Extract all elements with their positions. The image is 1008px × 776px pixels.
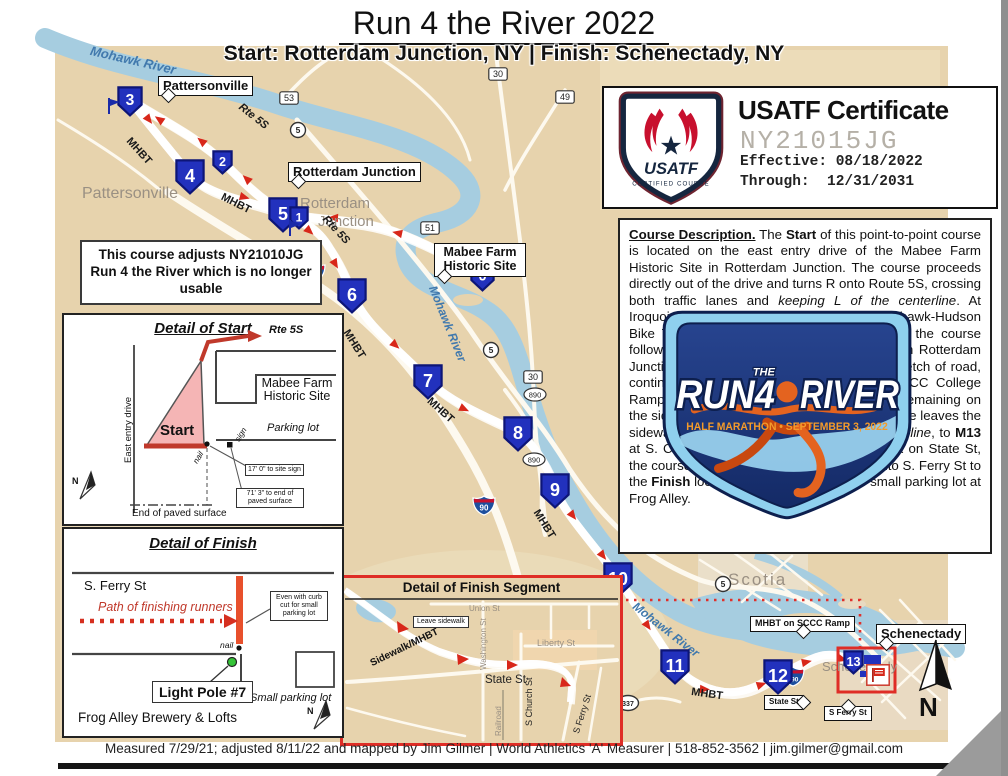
svg-text:890: 890 xyxy=(528,455,541,464)
svg-text:3: 3 xyxy=(126,92,135,109)
map-callout: MHBT on SCCC Ramp xyxy=(750,616,855,632)
usatf-shield-logo: USATF CERTIFIED COURSE xyxy=(612,90,730,206)
certificate-effective-row: Effective: 08/18/2022 xyxy=(740,154,923,170)
segment-washington-st: Washington St xyxy=(480,618,488,670)
detail-start-drive: East entry drive xyxy=(124,397,134,463)
logo-head-dot xyxy=(776,381,797,402)
svg-text:53: 53 xyxy=(284,93,294,103)
segment-state-st: State St xyxy=(485,674,526,686)
through-label: Through: xyxy=(740,174,810,190)
svg-text:5: 5 xyxy=(489,345,494,355)
poi-square-blue xyxy=(860,671,866,677)
svg-text:30: 30 xyxy=(528,372,538,382)
logo-the: THE xyxy=(753,367,776,379)
poi-building-blue xyxy=(864,655,881,664)
route-shield-30: 30 xyxy=(523,370,543,384)
map-callout: State St xyxy=(764,695,804,710)
certificate-title: USATF Certificate xyxy=(738,95,949,126)
segment-railroad: Railroad xyxy=(495,706,503,736)
route-shield-30: 30 xyxy=(488,67,508,81)
detail-finish-brewery: Frog Alley Brewery & Lofts xyxy=(78,711,237,725)
segment-union-st: Union St xyxy=(469,605,500,613)
route-shield-53: 53 xyxy=(279,91,299,105)
svg-text:890: 890 xyxy=(529,390,542,399)
svg-text:5: 5 xyxy=(296,125,301,135)
effective-label: Effective: xyxy=(740,154,827,170)
mile-marker-12: 12 xyxy=(763,659,793,695)
mile-marker-7: 7 xyxy=(413,364,443,400)
page-edge-right xyxy=(1001,0,1008,776)
map-callout: Rotterdam Junction xyxy=(288,162,421,182)
mile-marker-4: 4 xyxy=(175,159,205,195)
route-shield-49: 49 xyxy=(555,90,575,104)
svg-text:7: 7 xyxy=(423,371,433,391)
mile-marker-9: 9 xyxy=(540,473,570,509)
course-map-page: { "page": { "title": "Run 4 the River 20… xyxy=(0,0,1008,776)
svg-text:5: 5 xyxy=(721,579,726,589)
mile-marker-6: 6 xyxy=(337,278,367,314)
detail-finish-drawing xyxy=(64,529,342,736)
blue-flag-icon xyxy=(287,219,303,237)
mile-marker-8: 8 xyxy=(503,416,533,452)
detail-of-finish-box: Detail of Finish S. Ferry St Path of fin… xyxy=(62,527,344,738)
detail-start-paved: End of paved surface xyxy=(132,509,227,520)
detail-of-finish-segment-box: Detail of Finish Segment Union St Washin… xyxy=(340,575,623,746)
blue-flag-icon xyxy=(106,97,122,115)
map-label: Pattersonville xyxy=(82,186,178,202)
detail-start-rte5s: Rte 5S xyxy=(269,325,303,337)
usatf-badge-name: USATF xyxy=(644,159,699,178)
route-shield-5: 5 xyxy=(714,575,732,593)
usatf-certificate-box: USATF CERTIFIED COURSE USATF Certificate… xyxy=(602,86,998,209)
map-callout: Pattersonville xyxy=(158,76,253,96)
detail-start-callout-sign: 17' 0" to site sign xyxy=(245,464,304,476)
logo-word2: RIVER xyxy=(800,372,899,417)
detail-start-start: Start xyxy=(160,423,194,439)
detail-finish-street: S. Ferry St xyxy=(84,579,146,593)
segment-church-st: S Church St xyxy=(525,677,534,726)
usatf-badge-sub: CERTIFIED COURSE xyxy=(632,180,709,187)
detail-of-start-box: Detail of Start Rte 5S East entry drive … xyxy=(62,313,344,526)
effective-value: 08/18/2022 xyxy=(836,154,923,170)
svg-text:11: 11 xyxy=(665,656,684,676)
course-adjust-note: This course adjusts NY21010JG Run 4 the … xyxy=(80,240,322,305)
svg-text:6: 6 xyxy=(347,285,357,305)
segment-title: Detail of Finish Segment xyxy=(343,581,620,595)
map-label: Scotia xyxy=(728,571,787,588)
north-arrow-label: N xyxy=(919,692,938,723)
page-title: Run 4 the River 2022 xyxy=(0,5,1008,45)
map-callout: S Ferry St xyxy=(824,706,872,721)
detail-finish-callout: Even with curb cut for small parking lot xyxy=(270,591,328,621)
measurer-credit: Measured 7/29/21; adjusted 8/11/22 and m… xyxy=(0,741,1008,756)
map-label: Rotterdam xyxy=(300,196,370,211)
detail-finish-north-label: N xyxy=(307,707,314,716)
certificate-number: NY21015JG xyxy=(740,126,898,156)
svg-text:90: 90 xyxy=(480,504,489,513)
detail-finish-parking: Small parking lot xyxy=(250,693,331,705)
red-flag-icon xyxy=(866,664,890,686)
svg-text:12: 12 xyxy=(768,666,788,686)
svg-text:4: 4 xyxy=(185,166,195,186)
route-shield-90: 90 xyxy=(472,495,496,516)
detail-start-north-label: N xyxy=(72,477,79,486)
svg-text:13: 13 xyxy=(846,655,860,669)
detail-finish-nail: nail xyxy=(220,641,233,650)
detail-start-building: Mabee Farm Historic Site xyxy=(261,377,333,403)
segment-liberty-st: Liberty St xyxy=(537,639,575,648)
route-shield-890: 890 xyxy=(522,452,546,467)
svg-text:337: 337 xyxy=(622,701,634,708)
detail-start-callout-paved: 71' 3" to end of paved surface xyxy=(236,488,304,508)
svg-text:30: 30 xyxy=(493,69,503,79)
svg-text:8: 8 xyxy=(513,423,523,443)
bottom-rule xyxy=(58,763,1006,769)
page-subtitle: Start: Rotterdam Junction, NY | Finish: … xyxy=(0,42,1008,66)
certificate-through-row: Through: 12/31/2031 xyxy=(740,174,914,190)
mile-marker-11: 11 xyxy=(660,649,690,685)
through-value: 12/31/2031 xyxy=(827,174,914,190)
detail-start-parking: Parking lot xyxy=(267,423,319,435)
route-shield-5: 5 xyxy=(482,341,500,359)
route-shield-890: 890 xyxy=(523,387,547,402)
segment-leave-sidewalk-callout: Leave sidewalk xyxy=(413,616,469,628)
svg-text:49: 49 xyxy=(560,92,570,102)
north-arrow-icon xyxy=(912,636,960,696)
route-shield-51: 51 xyxy=(420,221,440,235)
svg-text:51: 51 xyxy=(425,223,435,233)
run4theriver-logo: RUN4 THE RIVER HALF MARATHON • SEPTEMBER… xyxy=(646,303,928,525)
detail-finish-pole: Light Pole #7 xyxy=(152,681,253,703)
map-callout: Mabee Farm Historic Site xyxy=(434,243,526,277)
mile-marker-2: 2 xyxy=(212,150,233,175)
route-shield-5: 5 xyxy=(289,121,307,139)
svg-text:9: 9 xyxy=(550,480,560,500)
detail-finish-path: Path of finishing runners xyxy=(98,601,233,614)
svg-text:2: 2 xyxy=(219,155,226,169)
logo-tagline: HALF MARATHON • SEPTEMBER 3, 2022 xyxy=(686,421,887,433)
